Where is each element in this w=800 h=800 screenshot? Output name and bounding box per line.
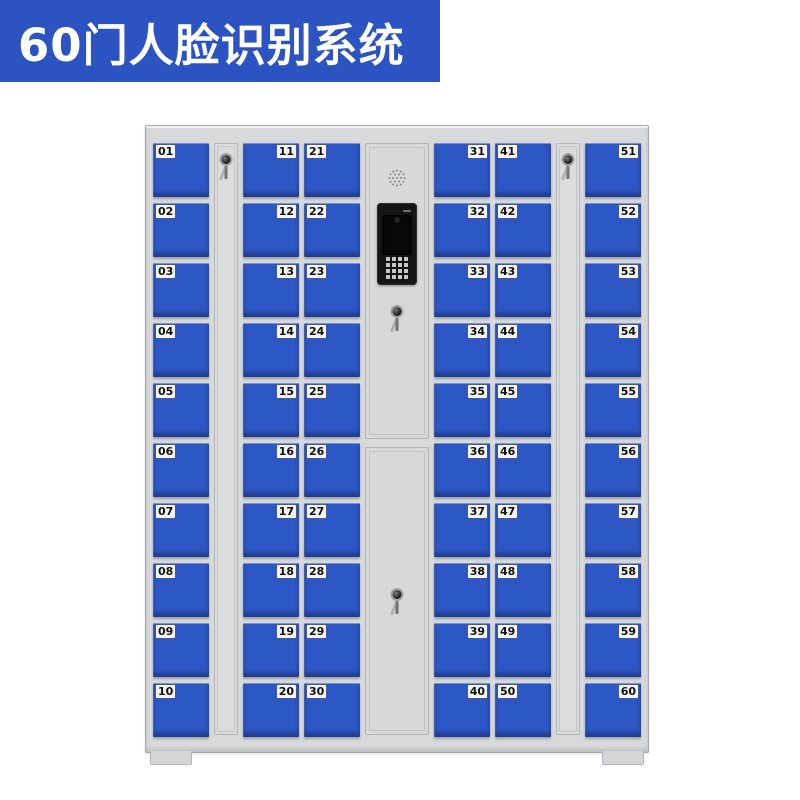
locker-door-18: 18: [243, 563, 299, 617]
door-number-label: 16: [277, 445, 296, 458]
door-number-label: 29: [307, 625, 326, 638]
locker-door-14: 14: [243, 323, 299, 377]
locker-door-13: 13: [243, 263, 299, 317]
lock-knob-icon: [393, 307, 402, 316]
locker-door-58: 58: [585, 563, 641, 617]
locker-door-48: 48: [495, 563, 551, 617]
locker-door-54: 54: [585, 323, 641, 377]
door-number-label: 20: [277, 685, 296, 698]
door-column: 01020304050607080910: [153, 143, 209, 735]
locker-door-53: 53: [585, 263, 641, 317]
door-number-label: 12: [277, 205, 296, 218]
locker-door-02: 02: [153, 203, 209, 257]
locker-door-30: 30: [304, 683, 360, 737]
door-column: 51525354555657585960: [585, 143, 641, 735]
door-number-label: 02: [156, 205, 175, 218]
locker-door-26: 26: [304, 443, 360, 497]
banner-title: 60门人脸识别系统: [18, 9, 405, 74]
door-number-label: 53: [619, 265, 638, 278]
door-number-label: 40: [468, 685, 487, 698]
cabinet-foot-right: [602, 751, 644, 765]
door-number-label: 07: [156, 505, 175, 518]
door-number-label: 19: [277, 625, 296, 638]
locker-door-55: 55: [585, 383, 641, 437]
locker-door-51: 51: [585, 143, 641, 197]
locker-door-22: 22: [304, 203, 360, 257]
locker-door-38: 38: [434, 563, 490, 617]
door-number-label: 24: [307, 325, 326, 338]
door-number-label: 30: [307, 685, 326, 698]
door-column: 41424344454647484950: [495, 143, 551, 735]
door-number-label: 35: [468, 385, 487, 398]
side-lock-panel: [214, 143, 238, 735]
terminal-screen: [382, 215, 412, 255]
locker-door-31: 31: [434, 143, 490, 197]
door-number-label: 38: [468, 565, 487, 578]
door-number-label: 18: [277, 565, 296, 578]
locker-door-19: 19: [243, 623, 299, 677]
locker-door-57: 57: [585, 503, 641, 557]
locker-door-46: 46: [495, 443, 551, 497]
door-number-label: 56: [619, 445, 638, 458]
locker-door-56: 56: [585, 443, 641, 497]
door-number-label: 10: [156, 685, 175, 698]
door-number-label: 25: [307, 385, 326, 398]
door-number-label: 01: [156, 145, 175, 158]
locker-door-16: 16: [243, 443, 299, 497]
door-number-label: 51: [619, 145, 638, 158]
door-number-label: 41: [498, 145, 517, 158]
door-number-label: 44: [498, 325, 517, 338]
locker-door-44: 44: [495, 323, 551, 377]
door-number-label: 17: [277, 505, 296, 518]
locker-door-49: 49: [495, 623, 551, 677]
door-number-label: 58: [619, 565, 638, 578]
door-number-label: 23: [307, 265, 326, 278]
locker-door-06: 06: [153, 443, 209, 497]
locker-door-15: 15: [243, 383, 299, 437]
door-number-label: 31: [468, 145, 487, 158]
locker-door-32: 32: [434, 203, 490, 257]
door-number-label: 33: [468, 265, 487, 278]
door-number-label: 36: [468, 445, 487, 458]
door-column: 11121314151617181920: [243, 143, 299, 735]
locker-door-27: 27: [304, 503, 360, 557]
door-number-label: 50: [498, 685, 517, 698]
locker-door-28: 28: [304, 563, 360, 617]
locker-door-33: 33: [434, 263, 490, 317]
door-number-label: 45: [498, 385, 517, 398]
door-number-label: 14: [277, 325, 296, 338]
locker-door-12: 12: [243, 203, 299, 257]
door-number-label: 03: [156, 265, 175, 278]
door-number-label: 43: [498, 265, 517, 278]
locker-door-47: 47: [495, 503, 551, 557]
locker-door-35: 35: [434, 383, 490, 437]
locker-door-43: 43: [495, 263, 551, 317]
door-number-label: 60: [619, 685, 638, 698]
door-number-label: 47: [498, 505, 517, 518]
door-number-label: 32: [468, 205, 487, 218]
door-number-label: 37: [468, 505, 487, 518]
door-number-label: 21: [307, 145, 326, 158]
control-panel-lower: [365, 447, 429, 735]
door-number-label: 27: [307, 505, 326, 518]
door-number-label: 22: [307, 205, 326, 218]
door-number-label: 09: [156, 625, 175, 638]
door-number-label: 06: [156, 445, 175, 458]
locker-door-34: 34: [434, 323, 490, 377]
key-lock: [558, 153, 578, 189]
door-number-label: 48: [498, 565, 517, 578]
door-number-label: 34: [468, 325, 487, 338]
locker-door-05: 05: [153, 383, 209, 437]
door-number-label: 42: [498, 205, 517, 218]
door-number-label: 49: [498, 625, 517, 638]
door-number-label: 46: [498, 445, 517, 458]
side-lock-panel: [556, 143, 580, 735]
key-lock: [387, 305, 407, 341]
door-number-label: 28: [307, 565, 326, 578]
door-column: 31323334353637383940: [434, 143, 490, 735]
locker-door-45: 45: [495, 383, 551, 437]
locker-door-23: 23: [304, 263, 360, 317]
door-number-label: 13: [277, 265, 296, 278]
locker-door-52: 52: [585, 203, 641, 257]
locker-door-37: 37: [434, 503, 490, 557]
lock-knob-icon: [564, 155, 573, 164]
locker-cabinet: 0102030405060708091011121314151617181920…: [145, 125, 649, 753]
locker-door-29: 29: [304, 623, 360, 677]
speaker-slit-icon: [403, 210, 411, 212]
locker-door-50: 50: [495, 683, 551, 737]
locker-door-36: 36: [434, 443, 490, 497]
door-column: 21222324252627282930: [304, 143, 360, 735]
locker-door-25: 25: [304, 383, 360, 437]
door-number-label: 05: [156, 385, 175, 398]
door-number-label: 39: [468, 625, 487, 638]
locker-door-07: 07: [153, 503, 209, 557]
lock-knob-icon: [222, 155, 231, 164]
locker-door-10: 10: [153, 683, 209, 737]
locker-door-21: 21: [304, 143, 360, 197]
camera-icon: [395, 218, 399, 222]
locker-door-41: 41: [495, 143, 551, 197]
locker-door-40: 40: [434, 683, 490, 737]
locker-door-08: 08: [153, 563, 209, 617]
door-number-label: 54: [619, 325, 638, 338]
locker-door-42: 42: [495, 203, 551, 257]
locker-door-03: 03: [153, 263, 209, 317]
locker-door-39: 39: [434, 623, 490, 677]
locker-door-17: 17: [243, 503, 299, 557]
locker-door-11: 11: [243, 143, 299, 197]
locker-door-09: 09: [153, 623, 209, 677]
door-number-label: 57: [619, 505, 638, 518]
door-number-label: 59: [619, 625, 638, 638]
door-number-label: 08: [156, 565, 175, 578]
speaker-grille-icon: [387, 168, 407, 188]
keypad: [386, 257, 408, 279]
face-recognition-terminal: [377, 203, 417, 285]
banner: 60门人脸识别系统: [0, 0, 440, 82]
lock-knob-icon: [393, 590, 402, 599]
locker-door-24: 24: [304, 323, 360, 377]
control-panel-upper: [365, 143, 429, 439]
locker-door-04: 04: [153, 323, 209, 377]
control-column: [365, 143, 429, 735]
locker-door-01: 01: [153, 143, 209, 197]
cabinet-foot-left: [150, 751, 192, 765]
key-lock: [216, 153, 236, 189]
key-lock: [387, 588, 407, 624]
door-number-label: 55: [619, 385, 638, 398]
door-number-label: 11: [277, 145, 296, 158]
door-number-label: 52: [619, 205, 638, 218]
locker-door-59: 59: [585, 623, 641, 677]
door-number-label: 15: [277, 385, 296, 398]
door-number-label: 04: [156, 325, 175, 338]
door-number-label: 26: [307, 445, 326, 458]
locker-door-20: 20: [243, 683, 299, 737]
locker-door-60: 60: [585, 683, 641, 737]
